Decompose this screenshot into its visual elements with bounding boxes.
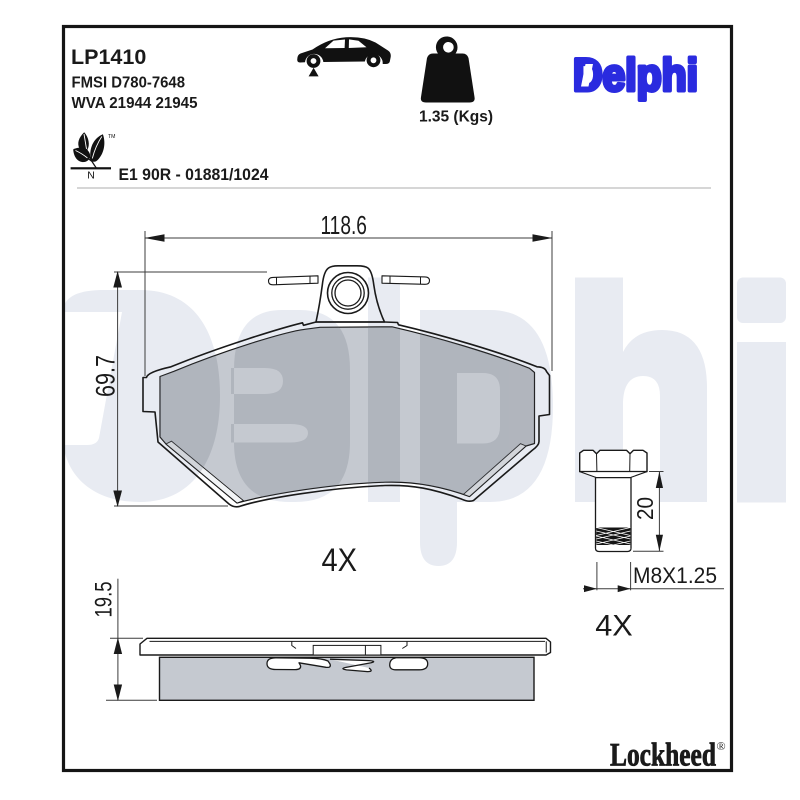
svg-text:TM: TM [108, 134, 116, 140]
svg-text:20: 20 [632, 497, 658, 520]
svg-text:WVA 21944 21945: WVA 21944 21945 [72, 95, 198, 112]
svg-text:19.5: 19.5 [91, 582, 118, 618]
svg-text:118.6: 118.6 [320, 210, 367, 240]
svg-text:FMSI D780-7648: FMSI D780-7648 [72, 75, 186, 92]
svg-text:E1 90R - 01881/1024: E1 90R - 01881/1024 [119, 165, 270, 184]
svg-text:69.7: 69.7 [91, 355, 121, 397]
svg-text:N: N [87, 170, 95, 182]
svg-text:1.35 (Kgs): 1.35 (Kgs) [419, 109, 493, 126]
svg-text:M8X1.25: M8X1.25 [633, 563, 717, 588]
svg-text:4X: 4X [321, 542, 357, 578]
svg-text:®: ® [717, 739, 726, 753]
svg-text:4X: 4X [595, 610, 633, 643]
svg-text:Lockheed: Lockheed [610, 738, 716, 774]
svg-text:LP1410: LP1410 [71, 45, 146, 69]
svg-text:Delphi: Delphi [573, 50, 698, 101]
